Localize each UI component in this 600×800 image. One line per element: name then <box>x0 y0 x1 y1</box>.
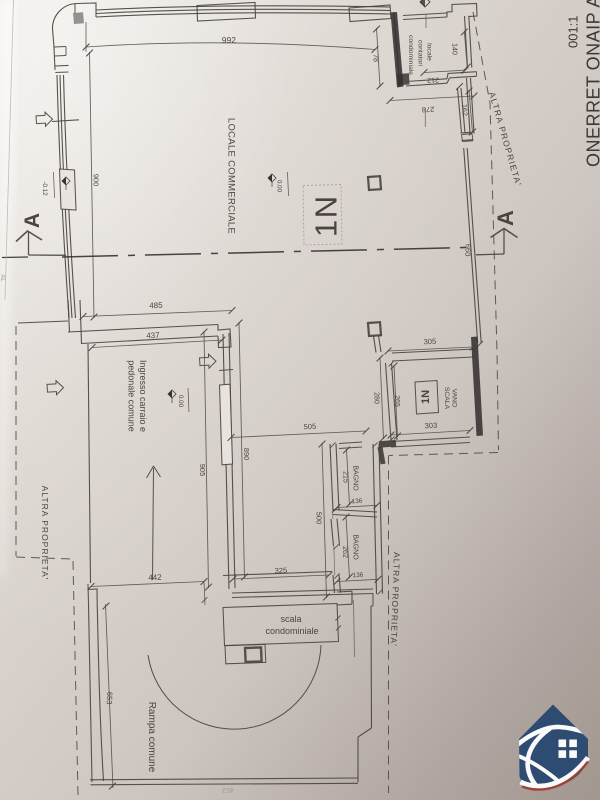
svg-text:453: 453 <box>222 786 234 793</box>
svg-text:001:1: 001:1 <box>566 15 581 48</box>
svg-text:140: 140 <box>451 43 458 55</box>
svg-text:A: A <box>493 210 518 226</box>
svg-text:VANO: VANO <box>451 389 458 408</box>
svg-text:AL: AL <box>0 274 5 282</box>
svg-text:Ingresso carraio e: Ingresso carraio e <box>138 360 148 432</box>
svg-text:pedonale comune: pedonale comune <box>127 360 137 432</box>
svg-text:442: 442 <box>148 573 162 582</box>
svg-text:BAGNO: BAGNO <box>352 534 359 560</box>
svg-text:BAGNO: BAGNO <box>352 465 359 491</box>
svg-text:1N: 1N <box>420 390 432 404</box>
svg-text:305: 305 <box>424 337 437 346</box>
svg-text:0.00: 0.00 <box>177 395 184 408</box>
svg-text:278: 278 <box>422 105 435 114</box>
svg-text:660: 660 <box>463 244 472 257</box>
svg-text:280: 280 <box>373 392 380 404</box>
svg-text:contatori: contatori <box>417 40 424 67</box>
svg-text:212: 212 <box>427 76 439 83</box>
svg-text:scala: scala <box>280 614 301 624</box>
svg-text:1: 1 <box>309 220 344 237</box>
svg-text:485: 485 <box>149 301 163 310</box>
svg-text:ALTRA PROPRIETA': ALTRA PROPRIETA' <box>40 486 50 581</box>
svg-text:Rampa comune: Rampa comune <box>146 702 157 773</box>
svg-text:136: 136 <box>351 498 362 505</box>
svg-text:condominiale: condominiale <box>407 35 414 75</box>
svg-text:N: N <box>309 196 344 218</box>
svg-text:653: 653 <box>105 692 115 705</box>
svg-text:303: 303 <box>425 421 438 430</box>
svg-text:A: A <box>21 213 44 228</box>
svg-text:992: 992 <box>222 35 237 45</box>
svg-text:905: 905 <box>198 464 207 477</box>
svg-text:ONERRET ONAIP A: ONERRET ONAIP A <box>584 0 600 167</box>
svg-text:500: 500 <box>315 512 324 525</box>
svg-text:condominiale: condominiale <box>265 626 318 636</box>
svg-text:890: 890 <box>242 448 251 461</box>
svg-text:LOCALE COMMERCIALE: LOCALE COMMERCIALE <box>226 118 237 234</box>
svg-text:0.00: 0.00 <box>276 180 283 193</box>
svg-text:262: 262 <box>341 546 348 558</box>
svg-text:437: 437 <box>146 331 160 340</box>
svg-text:78: 78 <box>372 54 379 62</box>
svg-text:SCALA: SCALA <box>443 387 450 410</box>
svg-text:-0.12: -0.12 <box>41 181 48 196</box>
svg-text:505: 505 <box>304 422 317 431</box>
svg-text:136: 136 <box>352 572 363 579</box>
svg-text:162: 162 <box>460 104 467 116</box>
svg-text:900: 900 <box>92 174 101 187</box>
svg-text:325: 325 <box>275 566 288 575</box>
svg-text:locale: locale <box>426 43 433 61</box>
svg-text:215: 215 <box>342 471 349 483</box>
svg-text:265: 265 <box>393 395 400 407</box>
